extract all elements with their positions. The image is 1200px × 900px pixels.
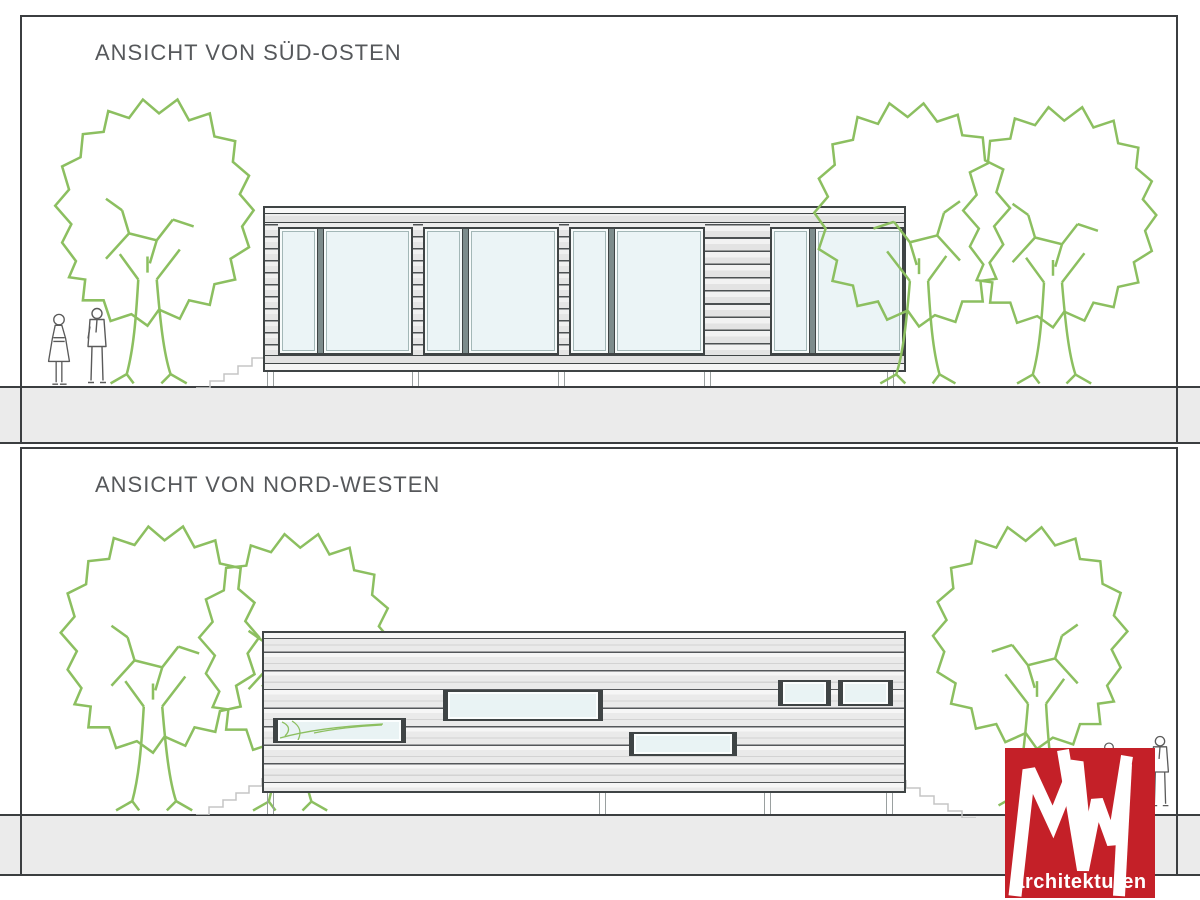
- strip-window-1: [273, 718, 406, 743]
- window-mullion: [608, 229, 615, 353]
- tree-seen-through-glass: [278, 720, 401, 740]
- glass-pane: [469, 229, 557, 353]
- title-north-west: ANSICHT VON NORD-WESTEN: [95, 472, 440, 498]
- glazed-unit-1: [278, 227, 413, 355]
- support-post: [704, 372, 711, 386]
- window-mullion: [462, 229, 469, 353]
- building-north-west-elevation: [262, 631, 906, 793]
- support-post: [764, 793, 771, 814]
- glass-pane: [280, 229, 317, 353]
- person-woman: [44, 312, 74, 388]
- support-post: [267, 372, 274, 386]
- support-post: [558, 372, 565, 386]
- siding-strip: [265, 224, 278, 355]
- glazed-unit-2: [423, 227, 559, 355]
- strip-window-4: [778, 680, 831, 706]
- glass-pane: [425, 229, 462, 353]
- glass-pane: [324, 229, 411, 353]
- siding-strip: [559, 224, 569, 355]
- glass-pane: [615, 229, 703, 353]
- support-post: [599, 793, 606, 814]
- support-post: [412, 372, 419, 386]
- glass-pane: [571, 229, 608, 353]
- support-post: [886, 793, 893, 814]
- logo-label: architekturen: [1005, 871, 1155, 894]
- drawing-sheet: ANSICHT VON SÜD-OSTEN ANSICHT VON NORD-W…: [0, 0, 1200, 900]
- strip-window-5: [838, 680, 893, 706]
- person-man: [82, 306, 112, 387]
- roof-fascia: [264, 633, 904, 639]
- strip-window-3: [629, 732, 737, 756]
- tree-bottom-left: [35, 515, 271, 815]
- strip-window-2: [443, 690, 603, 721]
- firm-logo: architekturen: [1005, 748, 1155, 898]
- title-south-east: ANSICHT VON SÜD-OSTEN: [95, 40, 402, 66]
- tree-top-far-right: [933, 96, 1173, 388]
- glazed-unit-3: [569, 227, 705, 355]
- window-mullion: [317, 229, 324, 353]
- siding-section: [705, 224, 770, 355]
- siding-strip: [413, 224, 423, 355]
